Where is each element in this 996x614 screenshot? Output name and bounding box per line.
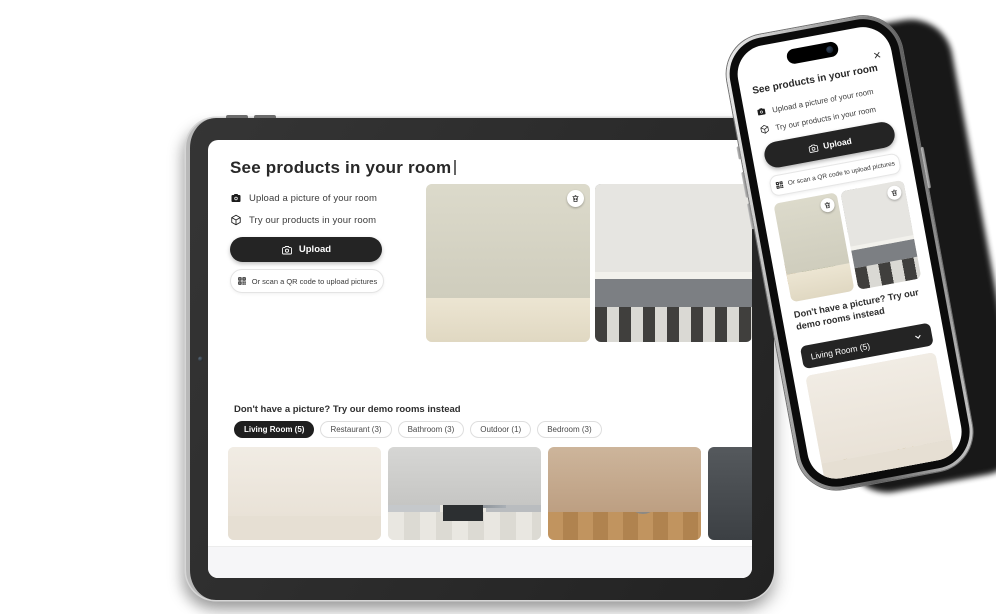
- room-scene-shape: [228, 447, 381, 516]
- tablet-screen: See products in your room Upload a pictu…: [208, 140, 752, 578]
- tablet-footer-strip: [208, 546, 752, 578]
- feature-try-products-label: Try our products in your room: [249, 215, 376, 226]
- room-scene-shape: [426, 298, 590, 342]
- tab-living-room-label: Living Room (5): [244, 425, 304, 434]
- mobile-demo-room-dropdown-value: Living Room (5): [810, 340, 871, 361]
- close-button[interactable]: ×: [872, 48, 882, 62]
- page-title: See products in your room: [230, 158, 456, 178]
- qr-upload-button[interactable]: Or scan a QR code to upload pictures: [230, 269, 384, 293]
- dynamic-island: [786, 41, 840, 65]
- tab-bathroom[interactable]: Bathroom (3): [398, 421, 465, 438]
- qr-code-icon: [774, 180, 784, 190]
- uploaded-room-photo-living[interactable]: [426, 184, 590, 342]
- tab-bathroom-label: Bathroom (3): [408, 425, 455, 434]
- demo-room-thumbnail-1[interactable]: [228, 447, 381, 540]
- mobile-uploaded-photos: [773, 180, 921, 302]
- text-cursor: [454, 160, 456, 175]
- room-scene-shape: [548, 512, 701, 540]
- page-canvas: See products in your room Upload a pictu…: [0, 0, 996, 614]
- tablet-volume-button: [226, 115, 248, 118]
- feature-upload-picture: Upload a picture of your room: [230, 192, 377, 204]
- mobile-room-photo-kitchen[interactable]: [840, 180, 921, 290]
- trash-icon: [823, 200, 832, 209]
- phone-front-camera: [826, 46, 834, 54]
- tablet-device: See products in your room Upload a pictu…: [186, 118, 774, 600]
- room-scene-shape: [773, 192, 849, 274]
- room-scene-shape: [595, 184, 752, 272]
- trash-icon: [571, 194, 580, 203]
- tablet-volume-button: [254, 115, 276, 118]
- room-scene-shape: [388, 447, 541, 505]
- room-scene-shape: [228, 516, 381, 540]
- qr-code-icon: [237, 276, 247, 286]
- room-scene-shape: [595, 279, 752, 307]
- room-scene-shape: [840, 180, 913, 247]
- mobile-qr-upload-button-label: Or scan a QR code to upload pictures: [787, 160, 895, 187]
- trash-icon: [890, 188, 899, 197]
- feature-try-products: Try our products in your room: [230, 214, 376, 226]
- camera-upload-icon: [281, 244, 293, 256]
- qr-upload-button-label: Or scan a QR code to upload pictures: [252, 277, 377, 286]
- demo-room-thumbnail-4[interactable]: [708, 447, 752, 540]
- tab-outdoor[interactable]: Outdoor (1): [470, 421, 531, 438]
- tab-restaurant[interactable]: Restaurant (3): [320, 421, 391, 438]
- mobile-upload-button-label: Upload: [822, 136, 852, 151]
- upload-button-label: Upload: [299, 244, 331, 255]
- camera-upload-icon: [807, 141, 820, 154]
- demo-section-title: Don't have a picture? Try our demo rooms…: [234, 404, 461, 415]
- demo-room-thumbnail-2[interactable]: [388, 447, 541, 540]
- delete-photo-button[interactable]: [567, 190, 584, 207]
- cube-icon: [230, 214, 242, 226]
- upload-button[interactable]: Upload: [230, 237, 382, 262]
- tab-restaurant-label: Restaurant (3): [330, 425, 381, 434]
- uploaded-room-photo-kitchen[interactable]: [595, 184, 752, 342]
- room-scene-shape: [548, 447, 701, 512]
- camera-icon: [230, 192, 242, 204]
- room-scene-shape: [426, 184, 590, 298]
- room-scene-shape: [595, 307, 752, 342]
- mobile-room-photo-living[interactable]: [773, 192, 854, 302]
- tablet-front-camera: [198, 357, 203, 362]
- room-scene-shape: [708, 447, 752, 540]
- tab-outdoor-label: Outdoor (1): [480, 425, 521, 434]
- page-title-text: See products in your room: [230, 158, 451, 177]
- chevron-down-icon: [912, 331, 924, 343]
- demo-room-thumbnail-3[interactable]: [548, 447, 701, 540]
- tab-bedroom-label: Bedroom (3): [547, 425, 591, 434]
- demo-room-tabs: Living Room (5) Restaurant (3) Bathroom …: [234, 421, 602, 438]
- cube-icon: [759, 123, 771, 135]
- tab-living-room[interactable]: Living Room (5): [234, 421, 314, 438]
- tab-bedroom[interactable]: Bedroom (3): [537, 421, 601, 438]
- camera-icon: [756, 106, 768, 118]
- feature-upload-picture-label: Upload a picture of your room: [249, 193, 377, 204]
